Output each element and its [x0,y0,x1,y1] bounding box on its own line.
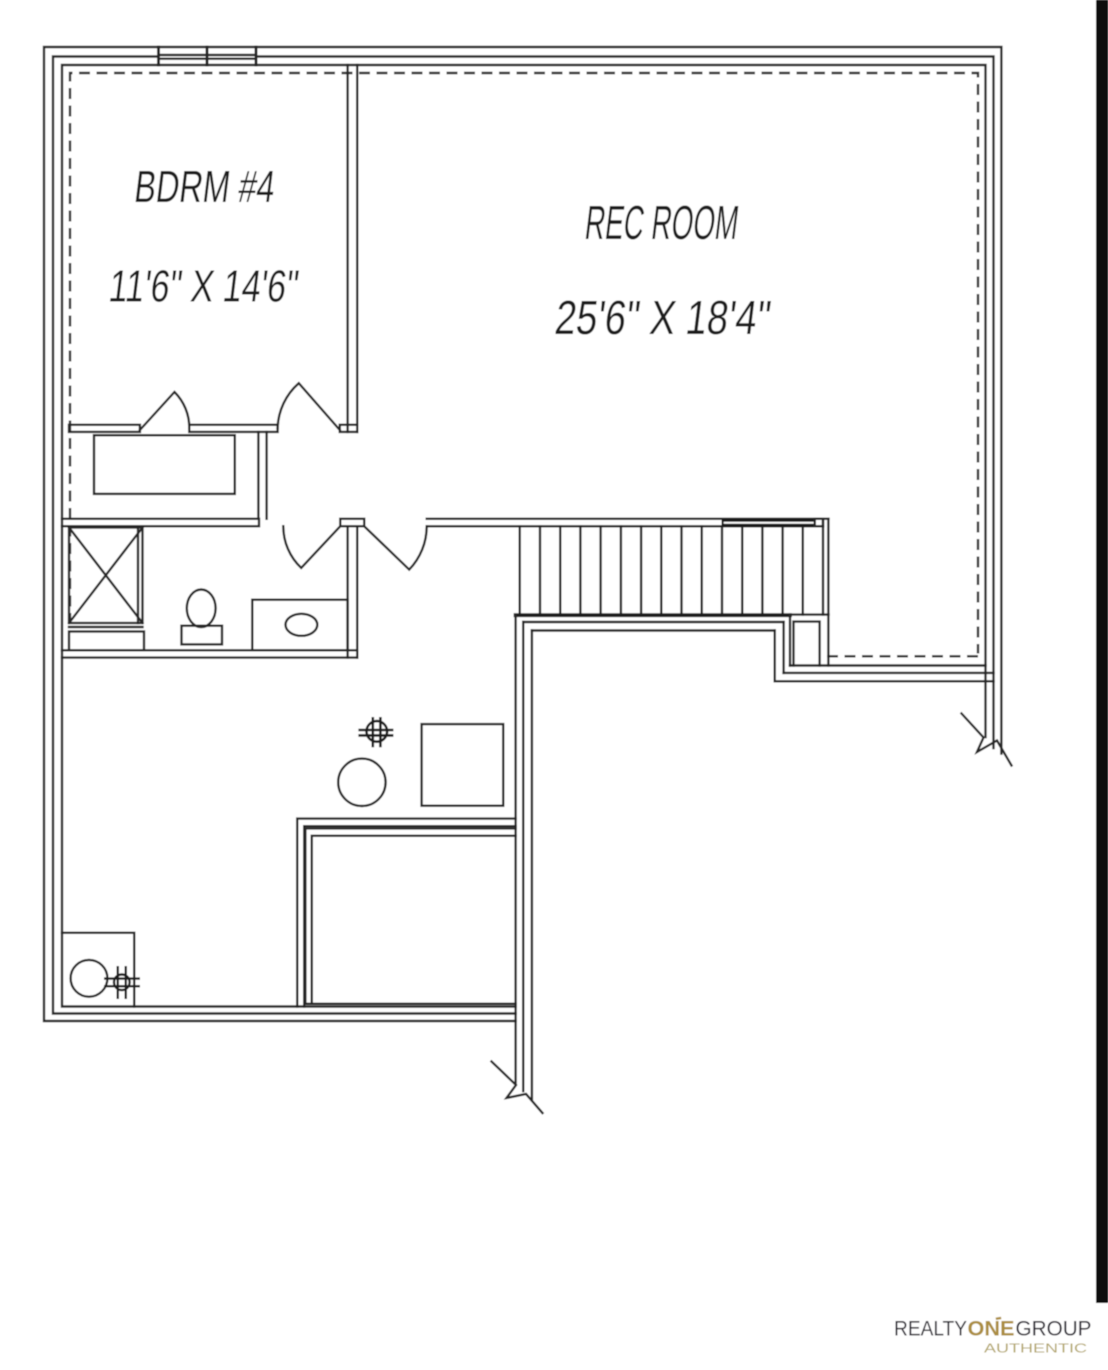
svg-text:BDRM #4: BDRM #4 [132,161,278,212]
svg-text:11'6" X 14'6": 11'6" X 14'6" [106,261,301,312]
svg-text:AUTHENTIC: AUTHENTIC [984,1341,1087,1356]
svg-text:REALTY: REALTY [894,1317,967,1341]
svg-text:ONE: ONE [968,1317,1015,1341]
svg-text:REC ROOM: REC ROOM [582,196,742,250]
svg-text:GROUP: GROUP [1016,1317,1092,1341]
svg-text:25'6" X 18'4": 25'6" X 18'4" [552,291,774,345]
